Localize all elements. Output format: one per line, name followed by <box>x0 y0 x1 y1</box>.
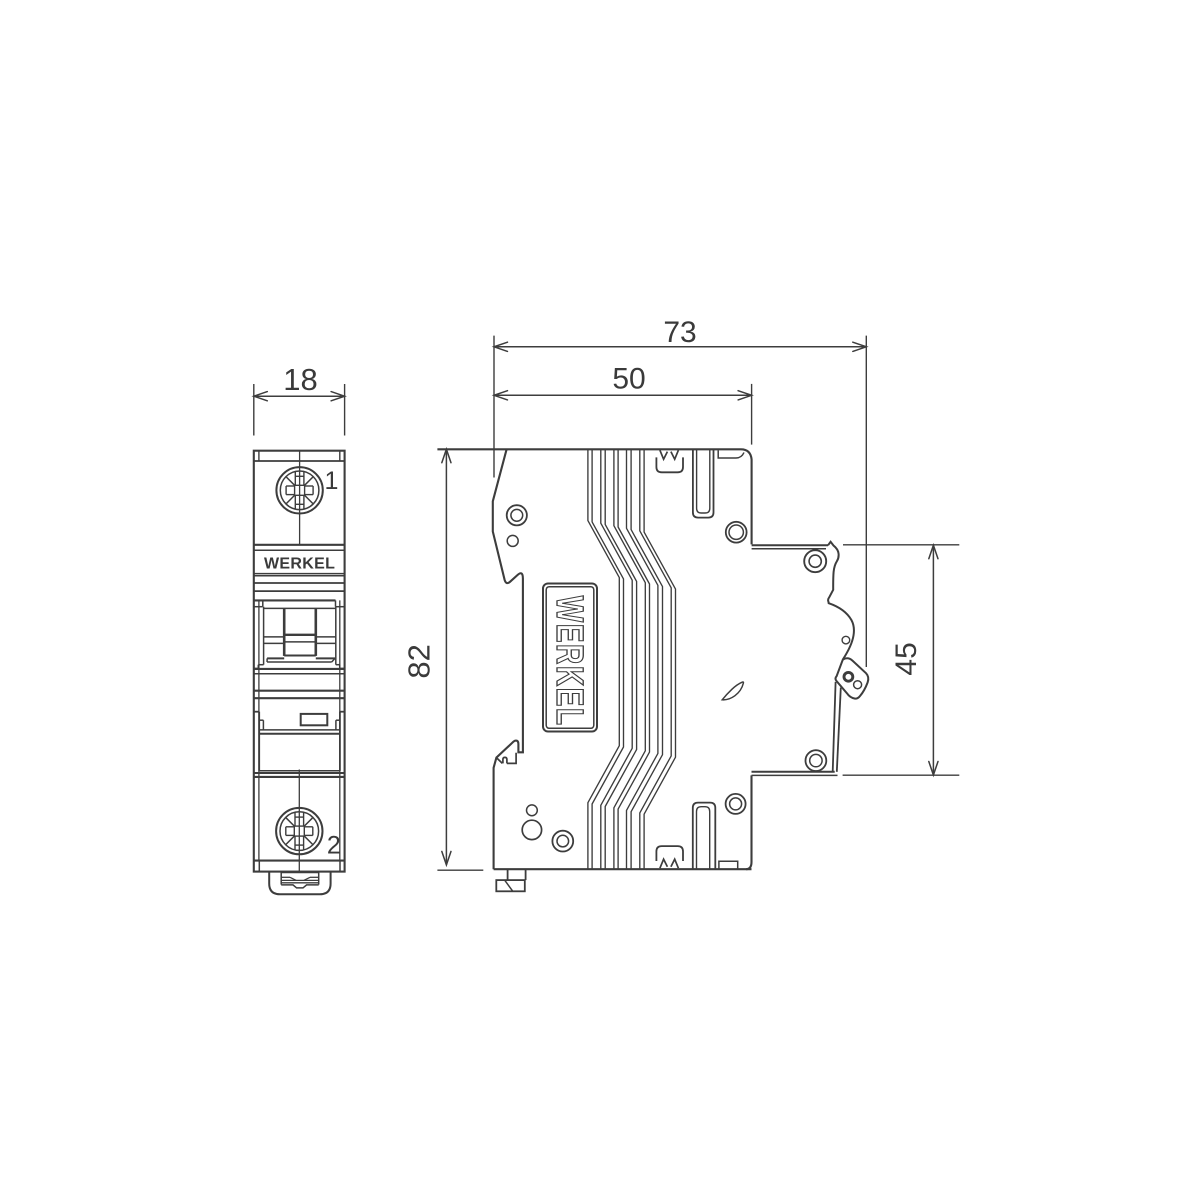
svg-text:73: 73 <box>663 316 696 349</box>
svg-text:50: 50 <box>612 363 645 396</box>
svg-text:2: 2 <box>327 831 341 859</box>
svg-text:WERKEL: WERKEL <box>548 596 590 727</box>
svg-text:18: 18 <box>283 362 317 397</box>
svg-text:45: 45 <box>890 642 923 675</box>
svg-text:WERKEL: WERKEL <box>264 555 335 572</box>
svg-text:1: 1 <box>325 467 339 495</box>
svg-text:82: 82 <box>401 644 436 678</box>
